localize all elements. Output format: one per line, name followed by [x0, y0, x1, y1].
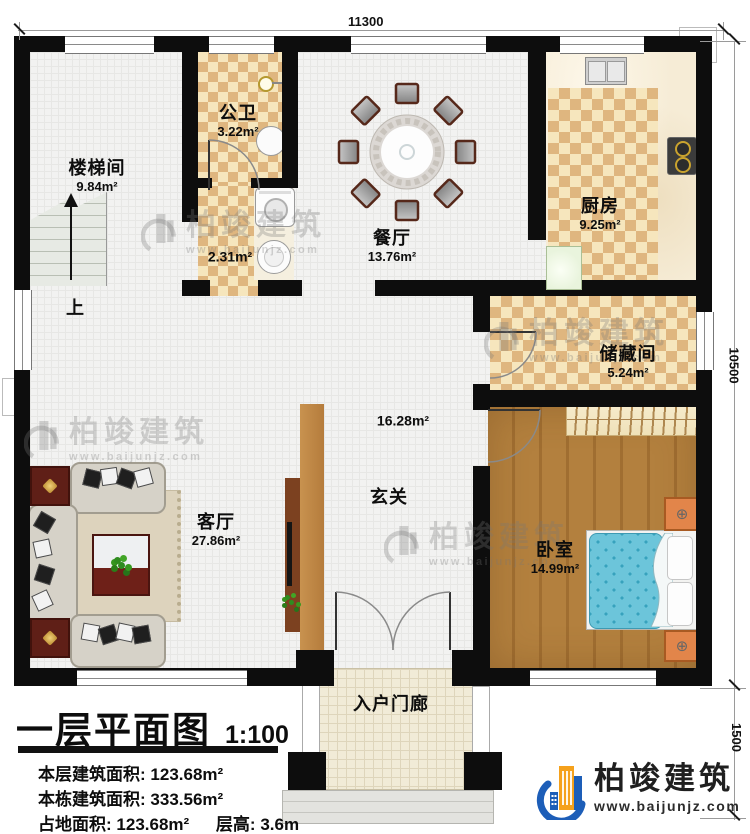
- window-top-2: [209, 36, 274, 54]
- dimension-right-main-value: 10500: [727, 347, 742, 383]
- bedroom-door: [486, 408, 544, 468]
- coffee-table: [92, 534, 150, 596]
- watermark-url: www.baijunjz.com: [69, 451, 209, 463]
- entry-double-door: [332, 588, 454, 650]
- entry-door-jamb-left: [296, 650, 334, 686]
- watermark-logo-icon: [384, 520, 422, 570]
- room-label-stairwell: 楼梯间9.84m²: [69, 154, 126, 194]
- room-label-storage: 储藏间5.24m²: [600, 340, 657, 380]
- room-label-porch: 入户门廊: [353, 690, 429, 716]
- wall-kitchen-left: [528, 52, 546, 240]
- footprint-line: 占地面积: 123.68m² 层高: 3.6m: [38, 810, 299, 834]
- porch-steps: [282, 790, 494, 824]
- window-top-4: [560, 36, 644, 54]
- porch-pillar-left: [288, 752, 326, 790]
- tv-screen: [287, 522, 292, 586]
- plant: [289, 600, 294, 605]
- watermark-logo-icon: [141, 208, 179, 258]
- window-left: [14, 290, 32, 370]
- wardrobe-rod: [567, 419, 697, 420]
- dimension-top-value: 11300: [348, 14, 383, 29]
- wall-storage-bottom: [473, 390, 696, 407]
- window-bottom-living: [77, 670, 247, 686]
- watermark-text: 柏竣建筑: [186, 211, 326, 241]
- fridge: [546, 246, 582, 290]
- wall-stair-bath: [182, 52, 198, 222]
- pillow: [667, 536, 693, 580]
- tv-wall-panel: [300, 404, 324, 662]
- wall-laundry-bottom-left: [182, 280, 210, 296]
- floor-porch: [318, 668, 474, 790]
- floor-area-line: 本层建筑面积: 123.68m²: [38, 760, 223, 785]
- title-underline: [18, 746, 278, 753]
- end-table: [30, 466, 70, 506]
- room-label-living: 客厅27.86m²: [192, 508, 240, 548]
- stairs-arrow-head: [64, 193, 78, 207]
- sink-basin: [607, 61, 625, 82]
- brand-logo-icon: [536, 762, 586, 820]
- kitchen-sink: [585, 57, 627, 85]
- sink-basin: [588, 61, 606, 82]
- nightstand: ⊕: [664, 497, 700, 531]
- room-label-bedroom: 卧室14.99m²: [531, 536, 579, 576]
- scale-label: 1:100: [225, 721, 289, 749]
- window-top-1: [65, 36, 154, 54]
- table-inlay: [42, 478, 58, 494]
- burner: [675, 157, 691, 173]
- sofa-pillow: [32, 538, 52, 558]
- room-label-dining: 餐厅13.76m²: [368, 224, 416, 264]
- burner: [675, 141, 691, 157]
- table-inlay: [42, 630, 58, 646]
- end-table: [30, 618, 70, 658]
- bed: [586, 530, 698, 630]
- plant: [118, 562, 125, 569]
- total-area-line: 本栋建筑面积: 333.56m²: [38, 785, 223, 810]
- sofa-pillow: [81, 623, 101, 643]
- watermark-logo-icon: [484, 316, 522, 366]
- porch-pillar-right: [464, 752, 502, 790]
- watermark: 柏竣建筑 www.baijunjz.com: [24, 415, 209, 465]
- pillow: [667, 582, 693, 626]
- wall-hall-storage-top: [375, 280, 696, 296]
- room-label-laundry: 2.31m²: [208, 250, 252, 265]
- watermark-text: 柏竣建筑: [69, 418, 209, 448]
- stairs-up-label: 上: [66, 298, 84, 318]
- bath-door: [200, 134, 264, 194]
- watermark-logo-icon: [24, 415, 62, 465]
- stove: [667, 137, 697, 175]
- brand-name: 柏竣建筑: [594, 762, 740, 796]
- wardrobe: [566, 404, 698, 436]
- stairs-arrow-line: [70, 206, 72, 280]
- nightstand: ⊕: [664, 630, 700, 662]
- wall-bath-right: [282, 52, 298, 187]
- dimension-line-top: [18, 30, 724, 31]
- room-label-bath: 公卫3.22m²: [217, 99, 258, 139]
- wall-laundry-bottom-right: [258, 280, 302, 296]
- ceiling-lamp: [258, 76, 274, 92]
- room-label-hall: 玄关: [370, 483, 408, 509]
- room-label-kitchen: 厨房9.25m²: [579, 192, 620, 232]
- window-bottom-bedroom: [530, 670, 656, 686]
- dimension-right-porch-value: 1500: [729, 723, 744, 752]
- porch-rail-right: [472, 686, 490, 754]
- floor-plan: 上: [0, 0, 750, 834]
- sofa-pillow: [132, 625, 152, 645]
- brand-logo: 柏竣建筑 www.baijunjz.com: [536, 762, 740, 820]
- window-top-3: [351, 36, 486, 54]
- dimension-line-right: [734, 42, 735, 820]
- room-label-hall-area: 16.28m²: [377, 414, 429, 429]
- brand-url: www.baijunjz.com: [594, 798, 740, 814]
- window-storage: [696, 312, 714, 370]
- dining-table-set: [327, 72, 487, 232]
- sofa-top: [70, 462, 166, 514]
- page-title: 一层平面图: [16, 710, 211, 751]
